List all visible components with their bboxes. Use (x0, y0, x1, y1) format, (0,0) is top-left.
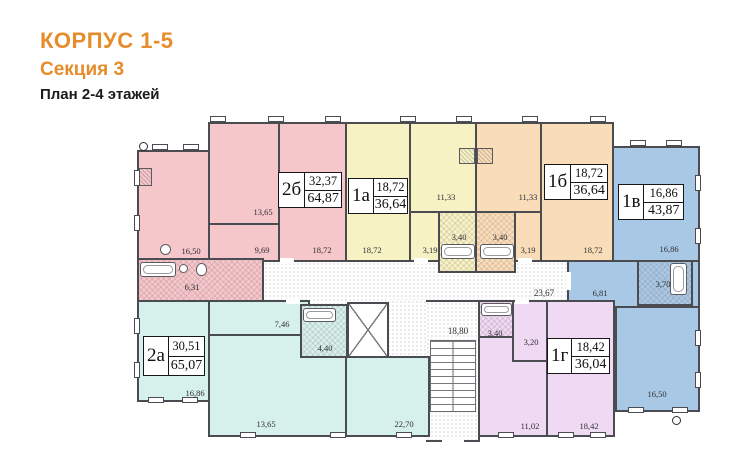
apt-1b-bathroom (475, 211, 516, 273)
stove-vent-icon (459, 148, 475, 164)
plan-caption: План 2-4 этажей (40, 86, 174, 103)
window-mark (400, 116, 416, 122)
room-area-label: 3,20 (524, 337, 539, 347)
total-area-value: 65,07 (169, 357, 204, 376)
room-area-label: 22,70 (394, 419, 413, 429)
room-area-label: 16,50 (181, 246, 200, 256)
total-area-value: 36,64 (571, 183, 607, 200)
room-area-label: 6,81 (593, 288, 608, 298)
room-area-label: 18,42 (579, 421, 598, 431)
room-area-label: 3,70 (656, 279, 671, 289)
window-mark (456, 116, 472, 122)
room-area-label: 3,40 (493, 232, 508, 242)
window-mark (630, 140, 646, 146)
floorplan-page: КОРПУС 1-5 Секция 3 План 2-4 этажей (0, 0, 740, 472)
window-mark (134, 362, 140, 378)
entrance-opening (442, 438, 464, 444)
door-opening (280, 258, 294, 264)
bathtub-icon (480, 244, 514, 259)
room-area-label: 9,69 (255, 245, 270, 255)
apt-1a-bathroom (438, 211, 478, 273)
circle-marker-icon (139, 142, 148, 151)
staircase-icon (430, 340, 476, 412)
door-opening (518, 258, 532, 264)
building-title: КОРПУС 1-5 (40, 28, 174, 54)
apartment-areas: 32,37 64,87 (304, 173, 341, 207)
room-area-label: 3,40 (488, 328, 503, 338)
apartment-areas: 18,72 36,64 (570, 165, 607, 199)
window-mark (148, 397, 164, 403)
room-area-label: 18,72 (312, 245, 331, 255)
room-area-label: 3,19 (521, 245, 536, 255)
window-mark (396, 432, 412, 438)
sink-icon (179, 264, 188, 273)
window-mark (330, 432, 346, 438)
window-mark (695, 372, 701, 388)
window-mark (590, 432, 606, 438)
corridor-area-label: 23,67 (534, 288, 554, 298)
room-area-label: 3,40 (452, 232, 467, 242)
door-opening (414, 258, 428, 264)
window-mark (210, 116, 226, 122)
window-mark (268, 116, 284, 122)
room-area-label: 6,31 (185, 282, 200, 292)
section-title: Секция 3 (40, 59, 174, 81)
room-area-label: 16,86 (185, 388, 204, 398)
bathtub-icon (140, 262, 176, 277)
room-area-label: 11,33 (519, 192, 538, 202)
apartment-info-1g: 1г 18,42 36,04 (547, 338, 610, 374)
apartment-areas: 18,72 36,64 (373, 179, 407, 213)
bathtub-icon (303, 308, 336, 322)
window-mark (134, 318, 140, 334)
apartment-areas: 18,42 36,04 (571, 339, 609, 373)
room-area-label: 18,72 (583, 245, 602, 255)
total-area-value: 36,64 (374, 197, 407, 214)
living-area-value: 18,72 (571, 165, 607, 183)
circle-marker-icon (672, 416, 681, 425)
sink-icon (160, 244, 171, 255)
window-mark (152, 144, 168, 150)
total-area-value: 64,87 (305, 191, 341, 208)
vent-shaft-icon (139, 168, 152, 186)
window-mark (695, 228, 701, 244)
apt-2a-room-3 (345, 356, 430, 437)
staircase-area-label: 18,80 (448, 326, 468, 336)
room-area-label: 7,46 (275, 319, 290, 329)
window-mark (558, 432, 574, 438)
apt-2b-hall (208, 223, 280, 262)
apartment-areas: 16,86 43,87 (643, 185, 683, 219)
apartment-id: 1б (545, 165, 570, 199)
window-mark (695, 330, 701, 346)
bathtub-icon (670, 263, 687, 295)
stove-vent-icon (477, 148, 493, 164)
total-area-value: 43,87 (644, 203, 683, 220)
elevator-shaft-icon (347, 302, 389, 358)
apartment-info-1b: 1б 18,72 36,64 (544, 164, 608, 200)
apt-2a-hall (208, 300, 310, 336)
window-mark (134, 215, 140, 231)
room-area-label: 11,33 (437, 192, 456, 202)
room-area-label: 11,02 (521, 421, 540, 431)
apartment-info-2a: 2а 30,51 65,07 (143, 336, 205, 376)
window-mark (240, 432, 256, 438)
living-area-value: 32,37 (305, 173, 341, 191)
apartment-id: 2б (279, 173, 304, 207)
apartment-id: 2а (144, 337, 168, 375)
door-opening (515, 299, 529, 304)
window-mark (522, 116, 538, 122)
window-mark (672, 407, 688, 413)
door-opening (566, 272, 571, 290)
apt-1g-hall (512, 300, 548, 362)
apartment-info-1a: 1а 18,72 36,64 (348, 178, 408, 214)
apartment-info-1v: 1в 16,86 43,87 (618, 184, 684, 220)
door-opening (286, 299, 300, 304)
toilet-icon (196, 263, 207, 276)
apartment-areas: 30,51 65,07 (168, 337, 204, 375)
room-area-label: 4,40 (318, 343, 333, 353)
room-area-label: 16,50 (647, 389, 666, 399)
living-area-value: 30,51 (169, 337, 204, 357)
window-mark (590, 116, 606, 122)
apartment-id: 1в (619, 185, 643, 219)
window-mark (183, 144, 199, 150)
living-area-value: 18,72 (374, 179, 407, 197)
window-mark (695, 175, 701, 191)
bathtub-icon (481, 303, 512, 316)
window-mark (134, 170, 140, 186)
apartment-id: 1а (349, 179, 373, 213)
room-area-label: 13,65 (256, 419, 275, 429)
room-area-label: 16,86 (659, 244, 678, 254)
apartment-id: 1г (548, 339, 571, 373)
window-mark (666, 140, 682, 146)
room-area-label: 13,65 (253, 207, 272, 217)
room-area-label: 18,72 (362, 245, 381, 255)
living-area-value: 18,42 (572, 339, 609, 357)
corridor (264, 258, 569, 304)
window-mark (498, 432, 514, 438)
bathtub-icon (441, 244, 475, 259)
total-area-value: 36,04 (572, 357, 609, 374)
room-area-label: 3,19 (423, 245, 438, 255)
window-mark (325, 116, 341, 122)
header: КОРПУС 1-5 Секция 3 План 2-4 этажей (40, 28, 174, 103)
apartment-info-2b: 2б 32,37 64,87 (278, 172, 342, 208)
stair-lobby (387, 300, 430, 360)
window-mark (628, 407, 644, 413)
living-area-value: 16,86 (644, 185, 683, 203)
